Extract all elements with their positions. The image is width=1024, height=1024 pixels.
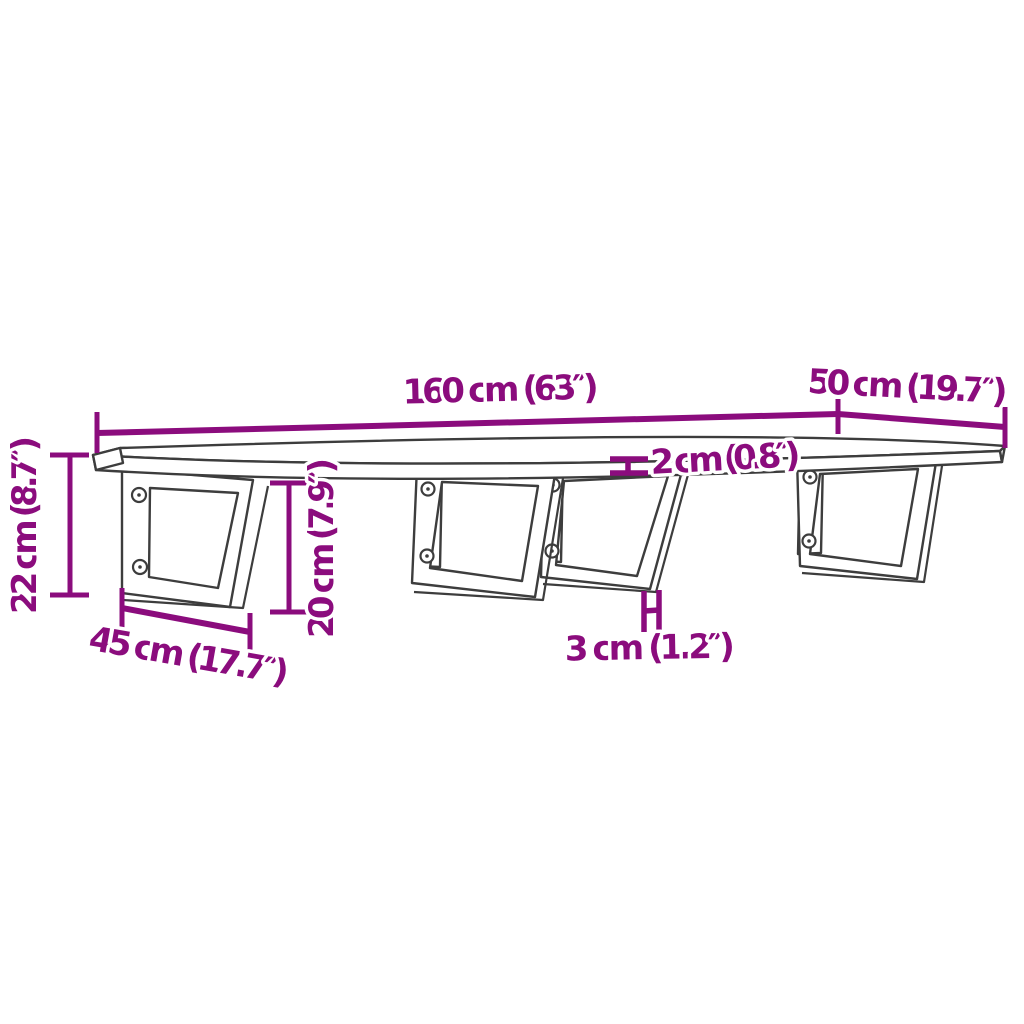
diagram-canvas: 160 cm (63″) 50 cm (19.7″) 2 cm (0.8″) 2… [0,0,1024,1024]
bracket-1-screw-bottom-dot [138,565,142,569]
bracket-2-frame [412,462,557,597]
bracket-1-screw-top-dot [137,493,141,497]
dimension-length-label: 160 cm (63″) [402,367,599,412]
dimension-bracket-height: 20 cm (7.9″) [270,458,342,638]
bracket-4-screw-bottom-dot [807,539,811,543]
dimension-bracket-thickness: 3 cm (1.2″) [564,590,735,669]
dimension-bracket-thickness-label: 3 cm (1.2″) [564,627,735,670]
bracket-2-screw-bottom-dot [425,554,429,558]
dimension-bracket-depth-label: 45 cm (17.7″) [86,619,292,693]
dimension-height: 22 cm (8.7″) [5,436,89,614]
dimension-bracket-thickness-crossbar [644,610,659,611]
dimension-depth-line [838,414,1005,427]
shelf-dimension-diagram: 160 cm (63″) 50 cm (19.7″) 2 cm (0.8″) 2… [0,0,1024,1024]
bracket-4-screw-top-dot [808,475,812,479]
bracket-2 [412,462,565,600]
bracket-1 [122,469,268,608]
dimension-thickness-label: 2 cm (0.8″) [649,435,801,483]
dimension-bracket-height-label: 20 cm (7.9″) [302,458,342,638]
dimension-length-line [97,414,838,433]
dimension-height-label: 22 cm (8.7″) [5,436,45,614]
bracket-2-screw-top-dot [426,487,430,491]
